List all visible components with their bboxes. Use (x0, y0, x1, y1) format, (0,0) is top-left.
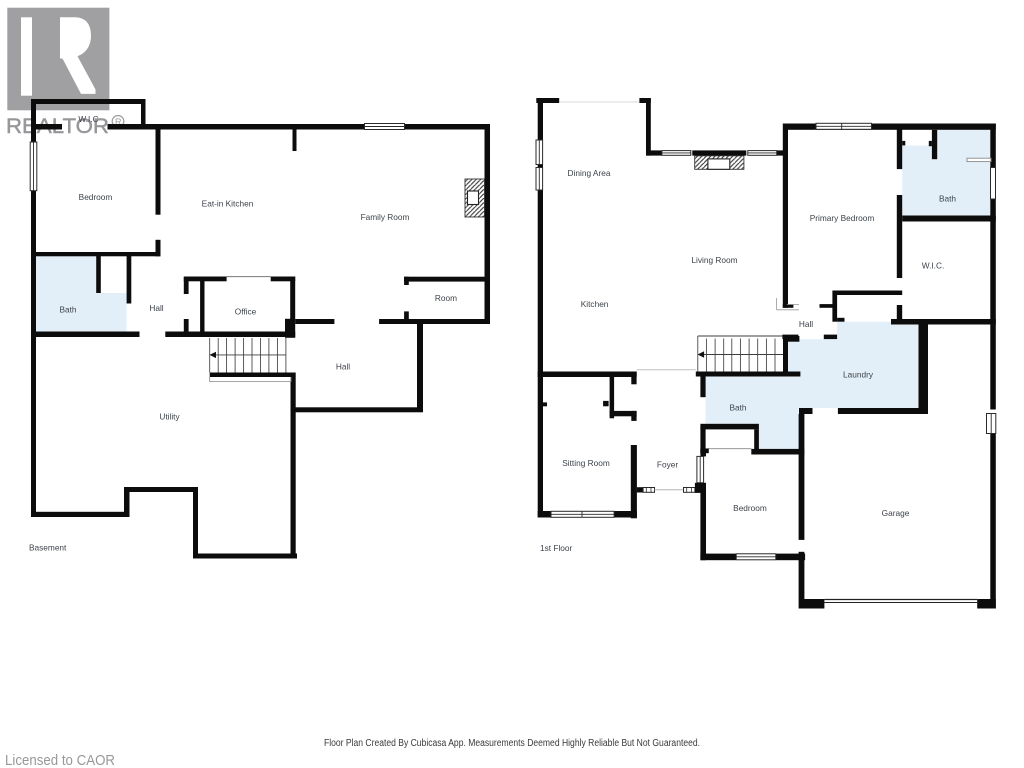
svg-text:Bath: Bath (729, 403, 746, 413)
svg-text:Floor Plan Created By Cubicasa: Floor Plan Created By Cubicasa App. Meas… (324, 738, 700, 749)
svg-text:Living Room: Living Room (691, 255, 737, 265)
svg-text:Utility: Utility (159, 412, 180, 422)
svg-text:Eat-in Kitchen: Eat-in Kitchen (202, 199, 254, 209)
svg-text:Bedroom: Bedroom (733, 503, 767, 513)
svg-text:Laundry: Laundry (843, 370, 874, 380)
svg-text:W.I.C: W.I.C (78, 114, 98, 124)
svg-text:Bedroom: Bedroom (79, 192, 113, 202)
svg-text:Basement: Basement (29, 543, 67, 553)
svg-text:Garage: Garage (882, 508, 910, 518)
svg-text:Foyer: Foyer (657, 460, 678, 470)
svg-text:Office: Office (235, 307, 257, 317)
svg-text:1st Floor: 1st Floor (540, 543, 573, 553)
svg-text:Bath: Bath (59, 305, 76, 315)
svg-text:Dining Area: Dining Area (568, 168, 611, 178)
svg-text:Licensed to CAOR: Licensed to CAOR (5, 752, 115, 768)
svg-text:W.I.C.: W.I.C. (922, 261, 945, 271)
svg-text:Primary Bedroom: Primary Bedroom (810, 213, 875, 223)
svg-text:Hall: Hall (149, 303, 163, 313)
svg-text:Sitting Room: Sitting Room (562, 458, 610, 468)
svg-text:Family Room: Family Room (361, 212, 410, 222)
svg-text:Hall: Hall (336, 362, 350, 372)
svg-text:Hall: Hall (799, 319, 813, 329)
svg-text:Bath: Bath (939, 194, 956, 204)
svg-text:Kitchen: Kitchen (581, 299, 609, 309)
svg-text:Room: Room (435, 293, 457, 303)
